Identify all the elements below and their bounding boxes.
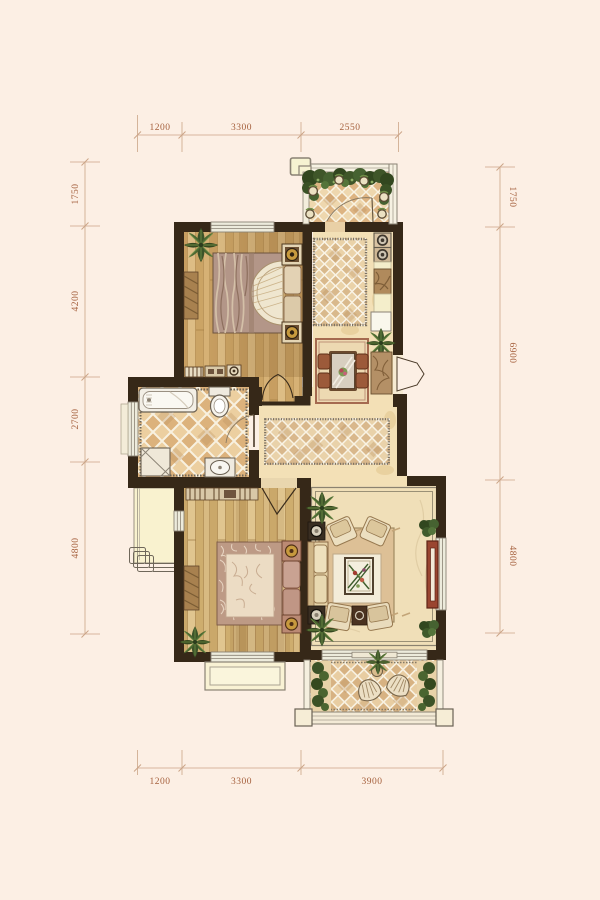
svg-text:1750: 1750 [507, 187, 517, 208]
svg-text:1200: 1200 [150, 123, 171, 133]
svg-text:3300: 3300 [231, 777, 252, 787]
svg-text:4800: 4800 [71, 538, 81, 559]
svg-text:1750: 1750 [71, 184, 81, 205]
svg-text:6900: 6900 [507, 343, 517, 364]
svg-text:2700: 2700 [71, 409, 81, 430]
svg-text:2550: 2550 [340, 123, 361, 133]
svg-text:1200: 1200 [150, 777, 171, 787]
svg-text:3300: 3300 [231, 123, 252, 133]
svg-text:4200: 4200 [71, 291, 81, 312]
svg-text:3900: 3900 [362, 777, 383, 787]
svg-text:4800: 4800 [507, 546, 517, 567]
